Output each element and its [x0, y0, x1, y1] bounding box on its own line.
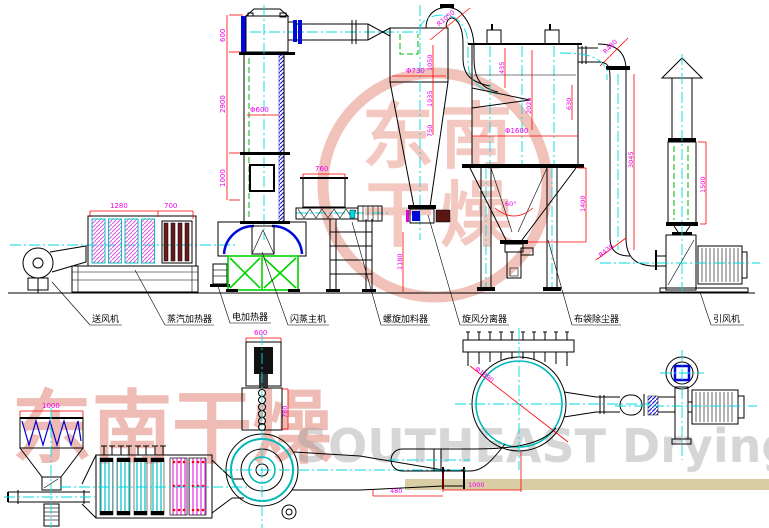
dim-duct-length: 480 — [390, 487, 402, 495]
dim-out-offset: 630 — [565, 98, 573, 110]
dim-cone-angle: 60° — [505, 200, 517, 208]
dim-out-elbow: R480 — [602, 38, 620, 56]
dim-cyclone-h2: 1935 — [426, 90, 434, 107]
dim-bag-body: 2025 — [525, 97, 533, 114]
watermarks: 东 南 干 燥 东南干燥 SOUTHEAST Drying — [12, 73, 769, 490]
label-electric-heater: 电加热器 — [232, 311, 268, 323]
dim-plan-offset: 1000 — [468, 481, 485, 489]
dim-bag-cone: 1400 — [579, 195, 587, 212]
dim-feeder-width: 760 — [315, 165, 328, 173]
label-steam-heater: 蒸汽加热器 — [167, 313, 212, 325]
dim-tower-body: 2900 — [219, 95, 227, 113]
dim-silencer: 1500 — [699, 176, 707, 193]
dim-cyclone-h1: 1050 — [426, 54, 434, 71]
dim-tower-dia: Φ600 — [250, 106, 269, 114]
dim-tower-cap: 600 — [219, 29, 227, 42]
dim-cyclone-dia: Φ730 — [406, 67, 425, 75]
watermark-english: SOUTHEAST Drying — [295, 419, 769, 473]
dim-bag-inlet: 435 — [498, 62, 506, 74]
blower-elevation — [23, 246, 86, 293]
steam-heater-elevation — [72, 216, 198, 292]
electric-heater-box — [210, 264, 230, 287]
motor-ribs — [696, 392, 732, 422]
dim-feeder-length: 780 — [281, 406, 289, 418]
flash-dryer-tower — [218, 5, 306, 292]
dim-heater-length: 1280 — [110, 202, 128, 210]
seal-ring — [323, 73, 547, 297]
drawing-svg: 东 南 干 燥 东南干燥 SOUTHEAST Drying — [0, 0, 769, 528]
dim-fan-elbow: R430 — [597, 242, 615, 259]
label-id-fan: 引风机 — [713, 313, 740, 325]
label-cyclone: 旋风分离器 — [462, 313, 507, 325]
seal-char-1: 东 — [362, 95, 434, 179]
label-screw-feeder: 螺旋加料器 — [383, 313, 428, 325]
dim-tower-base: 1000 — [219, 169, 227, 187]
dim-bag-dia: Φ1600 — [505, 127, 528, 135]
dim-bag-plan-dia: Φ1890 — [473, 365, 495, 384]
exhaust-train-elevation — [560, 38, 760, 292]
dim-cyclone-h3: 750 — [426, 125, 434, 137]
dim-cyclone-clearance: 1180 — [396, 253, 404, 270]
dim-out-drop: 3045 — [627, 151, 635, 168]
seal-char-4: 燥 — [440, 173, 513, 257]
label-flash-dryer: 闪蒸主机 — [290, 313, 326, 325]
flash-dryer-system-drawing: 东 南 干 燥 东南干燥 SOUTHEAST Drying — [0, 0, 769, 528]
dim-heater-section: 700 — [164, 202, 177, 210]
watermark-band — [405, 479, 769, 490]
label-blower: 送风机 — [92, 313, 119, 325]
dim-motor-width: 600 — [254, 329, 267, 337]
label-bag-filter: 布袋除尘器 — [574, 313, 619, 325]
